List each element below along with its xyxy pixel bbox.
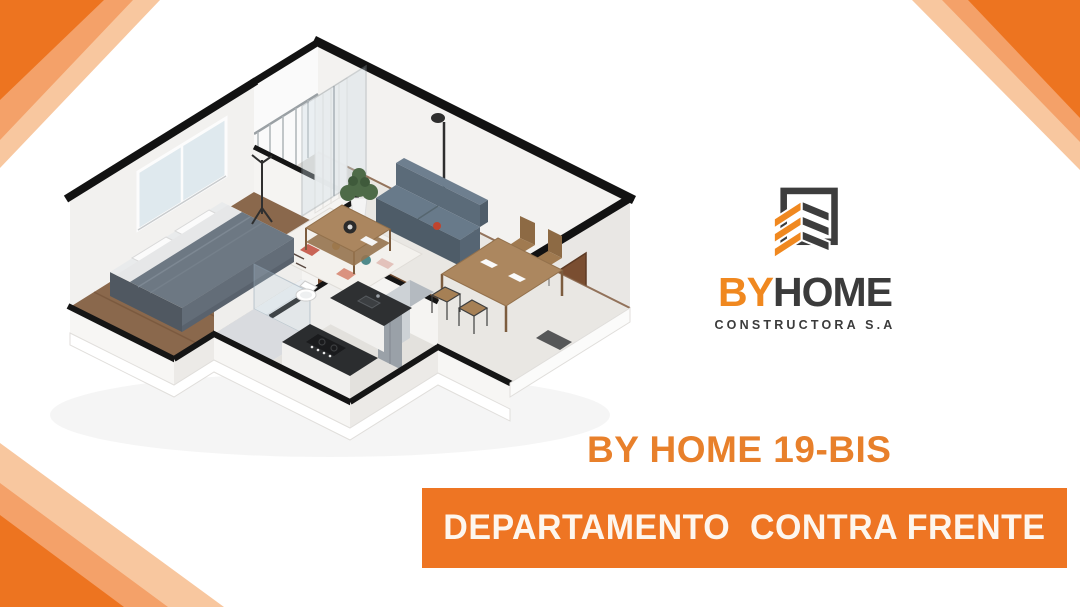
brand-name-secondary: HOME (773, 269, 892, 315)
marketing-slide: BYHOME CONSTRUCTORA S.A BY HOME 19-BIS D… (0, 0, 1080, 607)
corner-decoration-top-right (910, 0, 1080, 180)
brand-logo: BYHOME CONSTRUCTORA S.A (698, 186, 912, 332)
banner: DEPARTAMENTO CONTRA FRENTE (422, 488, 1067, 568)
brand-name-primary: BY (718, 269, 773, 315)
floorplan-illustration (0, 0, 680, 500)
project-title: BY HOME 19-BIS (587, 429, 891, 471)
brand-subtitle: CONSTRUCTORA S.A (698, 318, 912, 332)
brand-name: BYHOME (698, 272, 912, 313)
brand-logo-icon (764, 186, 846, 268)
banner-label: DEPARTAMENTO CONTRA FRENTE (443, 508, 1045, 548)
